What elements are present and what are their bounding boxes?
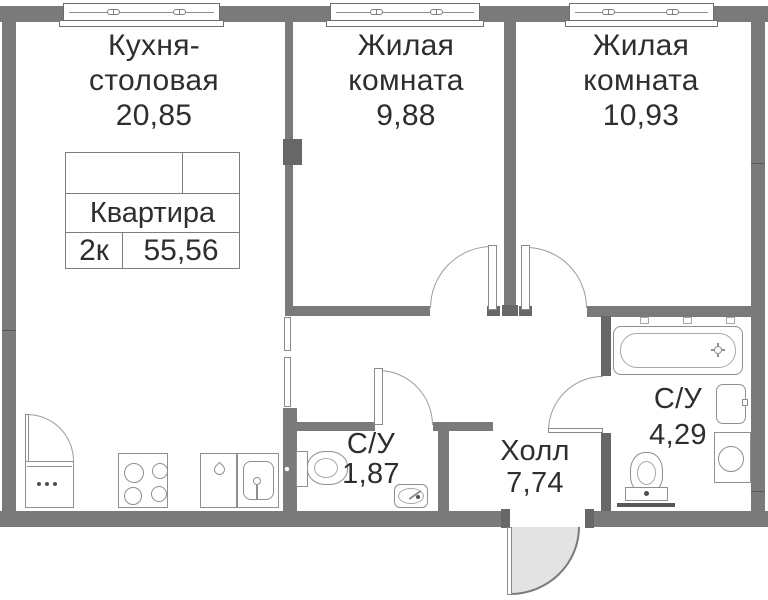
room-area: 20,85 bbox=[89, 98, 219, 133]
door-arc bbox=[378, 370, 433, 425]
toilet-base bbox=[617, 503, 675, 507]
fridge-line bbox=[27, 466, 72, 467]
virtual-boundary-dash bbox=[284, 317, 291, 351]
info-cell-empty bbox=[66, 153, 183, 193]
room-area: 1,87 bbox=[342, 459, 400, 489]
door-arc bbox=[526, 247, 587, 308]
wall bbox=[2, 6, 16, 527]
door-leaf bbox=[521, 245, 530, 310]
stove-burner bbox=[152, 463, 168, 479]
window-latch-icon bbox=[666, 9, 679, 15]
room-area: 10,93 bbox=[583, 98, 699, 133]
stove-burner bbox=[124, 487, 142, 505]
room-name: С/У bbox=[342, 429, 400, 459]
window-latch-icon bbox=[370, 9, 383, 15]
window-sill bbox=[565, 20, 718, 27]
window-frame-line bbox=[69, 12, 214, 13]
wall-pillar bbox=[283, 139, 302, 165]
window-sill bbox=[59, 20, 224, 27]
kitchen-tap-icon bbox=[253, 477, 261, 485]
wall bbox=[285, 22, 293, 315]
bathtub-faucet-center bbox=[714, 346, 722, 354]
virtual-boundary-dash bbox=[284, 357, 291, 407]
door-arc bbox=[430, 246, 492, 308]
room-label-wc-1: С/У 1,87 bbox=[342, 429, 400, 489]
tile-mark bbox=[726, 317, 735, 324]
stove-burner bbox=[151, 486, 167, 502]
window-latch-icon bbox=[430, 9, 443, 15]
fridge-dot bbox=[53, 482, 57, 486]
wall-seam bbox=[751, 163, 765, 164]
door-jamb bbox=[501, 509, 510, 528]
door-jamb bbox=[585, 509, 594, 528]
toilet-bowl-inner bbox=[637, 461, 656, 485]
room-label-living-2: Жилая комната 10,93 bbox=[583, 28, 699, 133]
kitchen-tap-stem bbox=[256, 485, 258, 499]
window-latch-icon bbox=[107, 9, 120, 15]
tile-mark bbox=[640, 317, 649, 324]
door-leaf bbox=[374, 368, 383, 425]
wall-seam bbox=[751, 491, 765, 492]
info-row-values: 2к 55,56 bbox=[66, 232, 239, 268]
floor-plan: Кухня- столовая 20,85 Жилая комната 9,88… bbox=[0, 0, 768, 600]
wall-seam bbox=[2, 330, 16, 331]
fridge-door-leaf bbox=[25, 414, 29, 462]
room-name: комната bbox=[583, 63, 699, 98]
fridge-dot bbox=[45, 482, 49, 486]
window-frame-line bbox=[336, 12, 474, 13]
room-area: 4,29 bbox=[649, 417, 707, 453]
flush-button bbox=[644, 491, 649, 496]
toilet-bowl-inner bbox=[314, 458, 338, 478]
room-area: 9,88 bbox=[348, 98, 464, 133]
wall bbox=[0, 511, 510, 527]
wall bbox=[502, 305, 518, 316]
wall bbox=[601, 433, 611, 511]
wall bbox=[601, 316, 611, 376]
door-leaf bbox=[507, 527, 512, 595]
room-name: комната bbox=[348, 63, 464, 98]
apartment-title: Квартира bbox=[90, 197, 215, 230]
room-name: Жилая bbox=[348, 28, 464, 63]
room-name: столовая bbox=[89, 63, 219, 98]
wall bbox=[504, 22, 516, 306]
apartment-layout: 2к bbox=[66, 233, 123, 268]
fridge-icon bbox=[25, 461, 74, 508]
info-cell-empty bbox=[183, 153, 239, 193]
wall bbox=[751, 6, 765, 527]
wall bbox=[585, 511, 768, 527]
fridge-door-arc bbox=[27, 414, 74, 461]
door-arc bbox=[548, 376, 603, 431]
entrance-door-icon bbox=[510, 527, 580, 595]
wall bbox=[285, 306, 430, 316]
door-leaf bbox=[548, 428, 603, 433]
room-name: С/У bbox=[649, 381, 707, 417]
fridge-dot bbox=[37, 482, 41, 486]
washing-machine-drum bbox=[718, 446, 744, 472]
window-frame-line bbox=[575, 12, 708, 13]
room-name: Холл bbox=[500, 435, 570, 467]
wall bbox=[587, 306, 765, 317]
window-sill bbox=[326, 20, 484, 27]
room-label-kitchen: Кухня- столовая 20,85 bbox=[89, 28, 219, 133]
stove-burner bbox=[124, 463, 144, 483]
tile-mark bbox=[683, 317, 692, 324]
room-label-living-1: Жилая комната 9,88 bbox=[348, 28, 464, 133]
apartment-total-area: 55,56 bbox=[123, 233, 239, 268]
room-label-wc-2: С/У 4,29 bbox=[649, 381, 707, 453]
flush-button bbox=[284, 466, 290, 472]
wall bbox=[438, 422, 449, 511]
room-area: 7,74 bbox=[500, 467, 570, 499]
window-latch-icon bbox=[173, 9, 186, 15]
room-label-hall: Холл 7,74 bbox=[500, 435, 570, 499]
room-name: Жилая bbox=[583, 28, 699, 63]
hand-sink-tap-dot bbox=[416, 495, 420, 499]
apartment-info-box: Квартира 2к 55,56 bbox=[65, 152, 240, 269]
room-name: Кухня- bbox=[89, 28, 219, 63]
door-leaf bbox=[488, 245, 497, 310]
bathroom-sink-tap bbox=[742, 399, 748, 406]
info-row-title: Квартира bbox=[66, 193, 239, 232]
window-latch-icon bbox=[602, 9, 615, 15]
info-row-empty bbox=[66, 153, 239, 193]
